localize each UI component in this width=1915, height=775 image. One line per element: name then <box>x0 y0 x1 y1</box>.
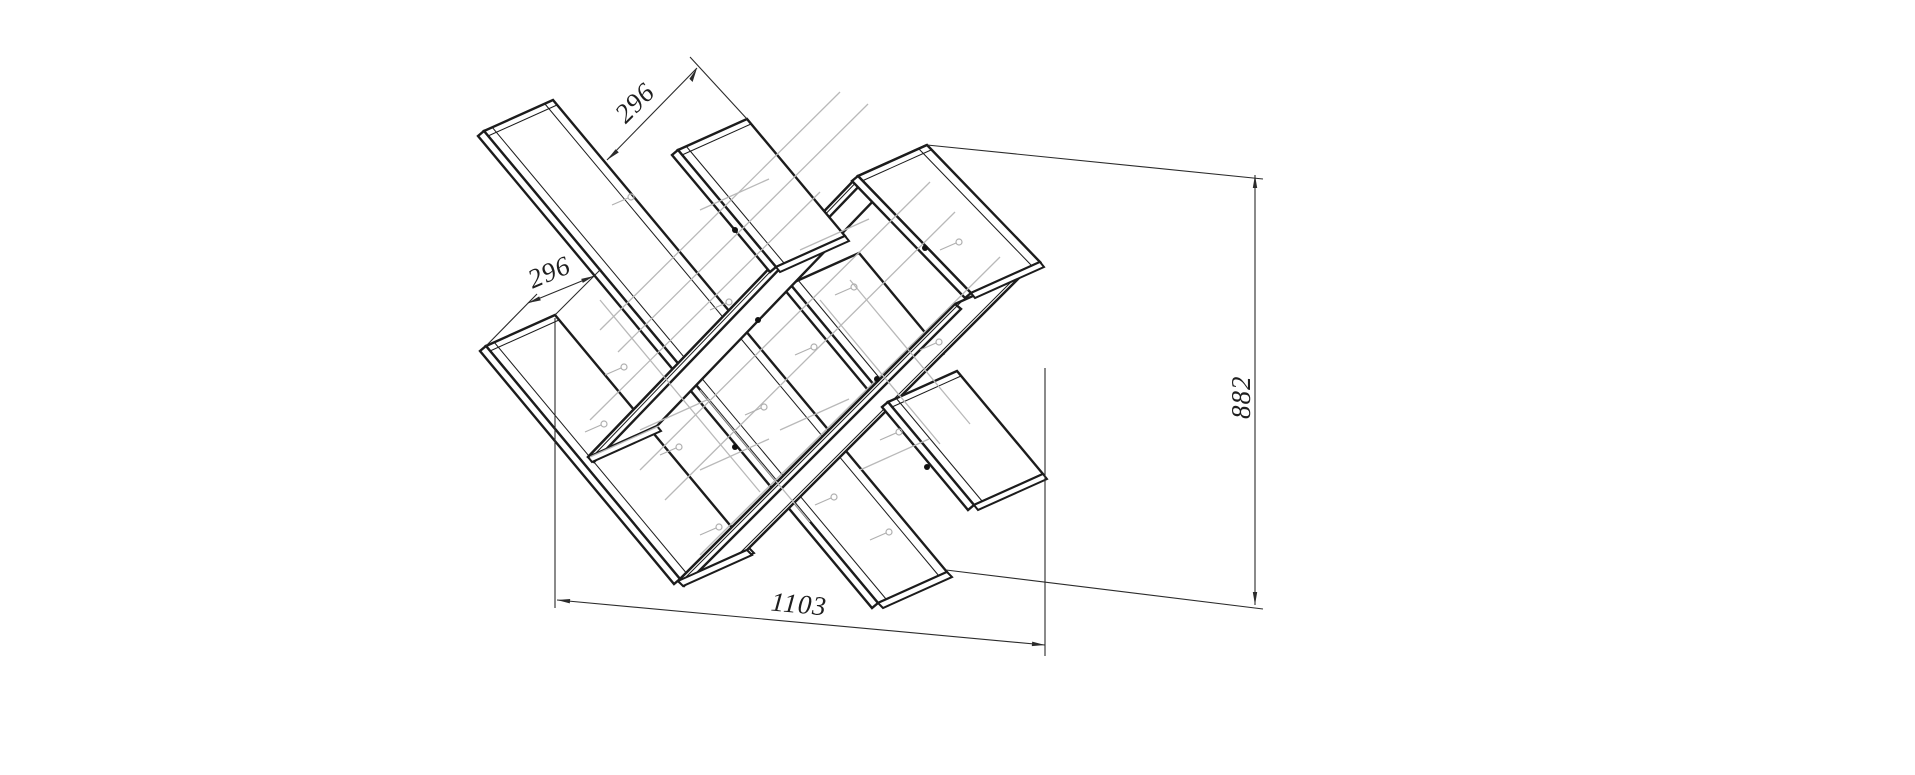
technical-drawing-canvas: 296 296 1103 882 <box>0 0 1915 775</box>
drawing-page: 296 296 1103 882 <box>0 0 1915 775</box>
dim-label-left-296: 296 <box>523 250 575 295</box>
dim-label-right-882: 882 <box>1226 376 1256 420</box>
dim-label-bottom-1103: 1103 <box>770 586 829 621</box>
board-top-middle <box>672 119 849 272</box>
dim-label-top-296: 296 <box>609 77 661 129</box>
shelf-unit <box>478 92 1047 608</box>
board-top-right <box>852 145 1044 298</box>
